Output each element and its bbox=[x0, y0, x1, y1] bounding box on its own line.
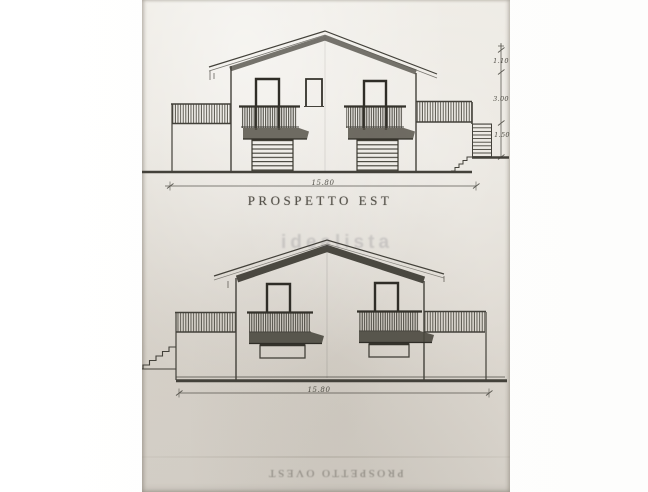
window-center bbox=[306, 79, 322, 106]
door-left bbox=[267, 284, 290, 313]
balcony-railing-left bbox=[241, 107, 297, 128]
stair-steps-left bbox=[143, 347, 176, 369]
fence-railing-left bbox=[176, 313, 236, 332]
fence-railing-right bbox=[416, 102, 472, 122]
balcony-railing-right bbox=[359, 312, 419, 331]
bottom-width-dimension-label: 15.80 bbox=[298, 386, 340, 394]
window-right bbox=[369, 344, 409, 357]
top-width-dimension-label: 15.80 bbox=[302, 179, 344, 187]
stair-steps-right bbox=[451, 157, 472, 171]
fence-railing-left bbox=[172, 104, 231, 123]
balcony-slab-right bbox=[359, 331, 434, 342]
height-dim-label-3: 1.50 bbox=[491, 131, 513, 139]
elevation-bottom bbox=[142, 240, 507, 398]
door-right bbox=[375, 283, 398, 312]
stair-wall-right bbox=[473, 124, 492, 157]
elevation-top bbox=[142, 31, 509, 191]
balcony-slab-left bbox=[243, 128, 309, 139]
balcony-slab-right bbox=[348, 128, 415, 139]
top-elevation-title: PROSPETTO EST bbox=[245, 193, 395, 209]
bottom-flipped-caption: PROSPETTO OVEST bbox=[232, 467, 438, 479]
eave-tick-left bbox=[210, 71, 214, 80]
photographed-drawing: 15.80 PROSPETTO EST 1.10 3.00 1.50 ideal… bbox=[0, 0, 648, 492]
height-dim-label-2: 3.00 bbox=[490, 95, 512, 103]
shutter-left bbox=[252, 140, 293, 171]
window-left bbox=[260, 345, 305, 358]
balcony-railing-left bbox=[249, 313, 310, 332]
balcony-railing-right bbox=[346, 107, 403, 128]
fence-railing-right bbox=[424, 312, 485, 332]
height-dim-label-1: 1.10 bbox=[490, 57, 512, 65]
balcony-slab-left bbox=[249, 332, 324, 343]
shutter-right bbox=[357, 140, 398, 171]
watermark-text: idealista bbox=[252, 232, 422, 254]
